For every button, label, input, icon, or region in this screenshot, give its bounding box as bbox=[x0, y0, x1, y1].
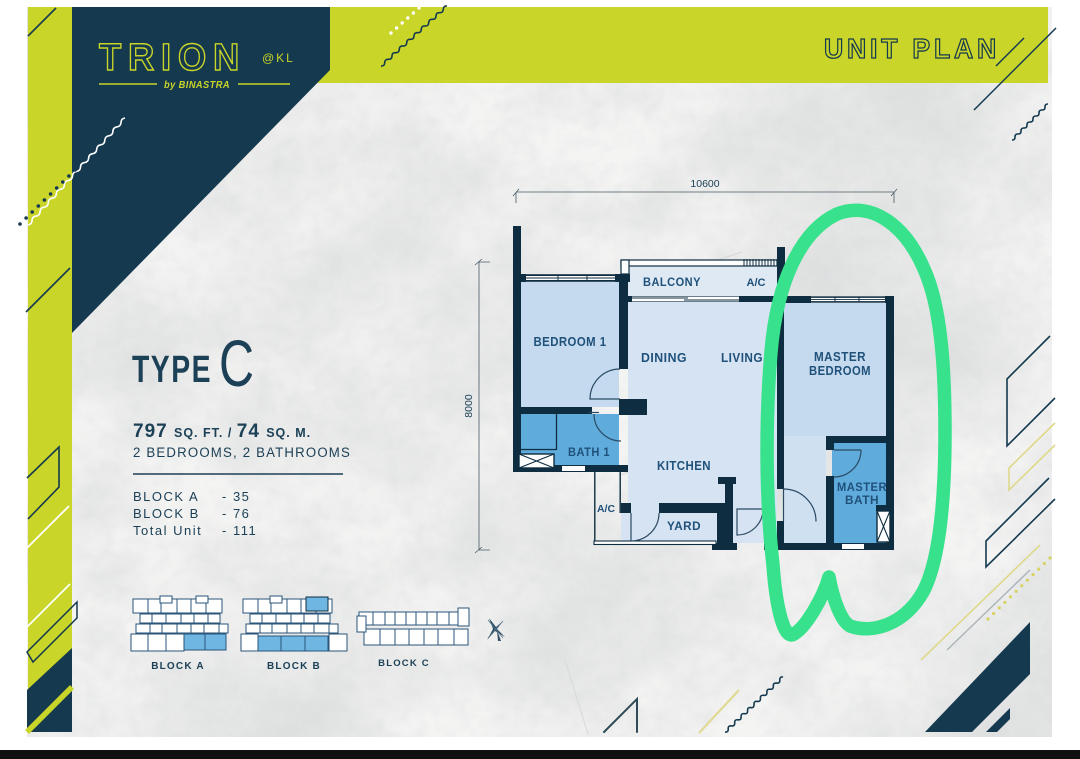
svg-text:C: C bbox=[219, 326, 254, 400]
svg-text:A/C: A/C bbox=[597, 503, 616, 515]
svg-text:by BINASTRA: by BINASTRA bbox=[164, 79, 230, 91]
svg-text:DINING: DINING bbox=[641, 351, 687, 365]
svg-text:BEDROOM 1: BEDROOM 1 bbox=[534, 335, 607, 349]
svg-text:BLOCK B: BLOCK B bbox=[267, 661, 321, 672]
svg-text:- 76: - 76 bbox=[222, 506, 250, 521]
svg-text:- 35: - 35 bbox=[222, 489, 250, 504]
svg-text:BALCONY: BALCONY bbox=[643, 277, 701, 289]
svg-text:BLOCK B: BLOCK B bbox=[133, 506, 200, 521]
svg-text:YARD: YARD bbox=[667, 519, 701, 533]
svg-text:- 111: - 111 bbox=[222, 523, 257, 538]
svg-text:BLOCK A: BLOCK A bbox=[133, 489, 199, 504]
svg-text:Total Unit: Total Unit bbox=[133, 523, 202, 538]
svg-text:BEDROOM: BEDROOM bbox=[809, 364, 871, 378]
svg-text:2 BEDROOMS, 2 BATHROOMS: 2 BEDROOMS, 2 BATHROOMS bbox=[133, 445, 351, 460]
svg-text:UNIT PLAN: UNIT PLAN bbox=[824, 33, 1000, 64]
svg-text:TRION: TRION bbox=[99, 37, 246, 79]
svg-text:BATH: BATH bbox=[845, 495, 879, 507]
svg-text:BLOCK C: BLOCK C bbox=[378, 658, 430, 669]
svg-text:8000: 8000 bbox=[463, 394, 475, 418]
svg-text:KITCHEN: KITCHEN bbox=[657, 459, 711, 473]
svg-text:TYPE: TYPE bbox=[132, 349, 212, 391]
svg-text:10600: 10600 bbox=[690, 178, 719, 190]
svg-text:LIVING: LIVING bbox=[721, 351, 763, 365]
svg-text:MASTER: MASTER bbox=[814, 350, 866, 364]
svg-text:BLOCK A: BLOCK A bbox=[151, 661, 205, 672]
svg-text:A/C: A/C bbox=[747, 277, 766, 289]
svg-text:MASTER: MASTER bbox=[837, 482, 887, 494]
svg-text:@KL: @KL bbox=[262, 51, 295, 65]
svg-text:BATH 1: BATH 1 bbox=[568, 447, 610, 459]
